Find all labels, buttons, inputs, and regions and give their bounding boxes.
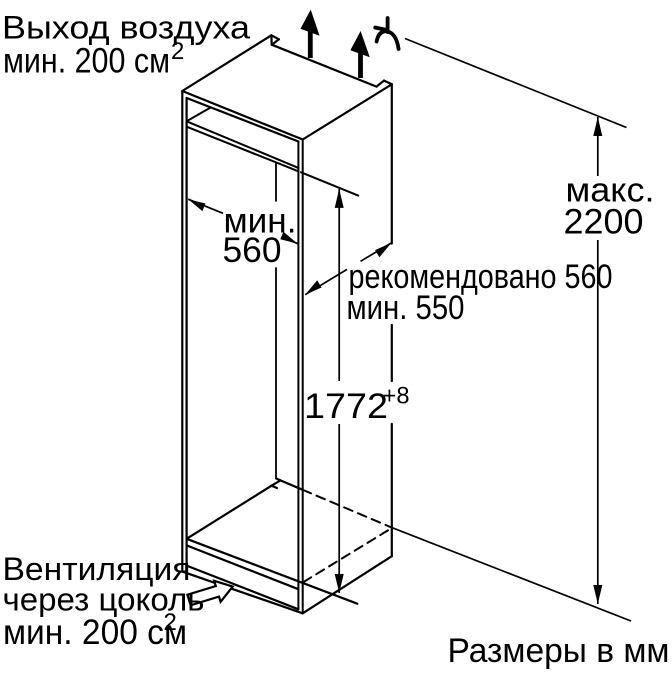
svg-text:Выход воздуха: Выход воздуха bbox=[2, 10, 250, 46]
svg-text:мин. 200 см: мин. 200 см bbox=[3, 42, 170, 81]
svg-text:2200: 2200 bbox=[564, 203, 644, 242]
svg-text:Размеры в мм: Размеры в мм bbox=[448, 632, 670, 670]
svg-text:+8: +8 bbox=[383, 383, 410, 410]
svg-text:2: 2 bbox=[164, 609, 177, 636]
svg-text:мин. 550: мин. 550 bbox=[347, 289, 465, 327]
svg-text:560: 560 bbox=[223, 231, 282, 270]
svg-text:1772: 1772 bbox=[304, 387, 388, 426]
svg-text:мин. 200 см: мин. 200 см bbox=[3, 613, 187, 652]
svg-text:2: 2 bbox=[171, 38, 184, 65]
